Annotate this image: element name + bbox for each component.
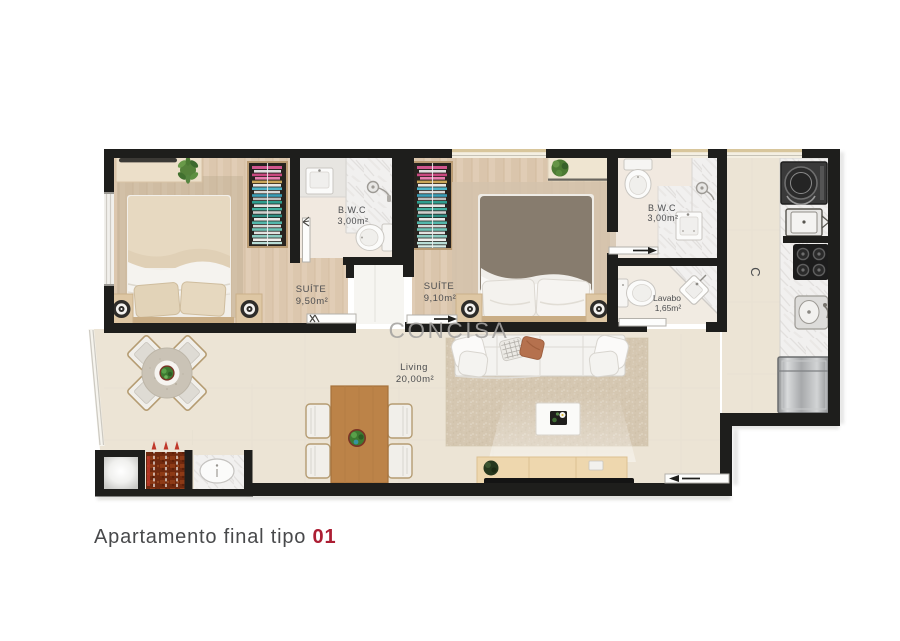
svg-text:3,00m²: 3,00m² [337,216,368,226]
svg-text:20,00m²: 20,00m² [396,374,434,385]
svg-text:C: C [748,267,763,276]
svg-text:CONCISA: CONCISA [389,318,510,343]
svg-text:Living: Living [400,362,428,373]
svg-text:SUÍTE: SUÍTE [424,281,454,292]
svg-text:3,00m²: 3,00m² [647,213,678,223]
svg-text:9,10m²: 9,10m² [424,293,457,304]
svg-text:9,50m²: 9,50m² [296,296,329,307]
svg-text:Lavabo: Lavabo [653,293,681,303]
svg-text:Apartamento final tipo 01: Apartamento final tipo 01 [94,526,336,548]
svg-text:1,65m²: 1,65m² [655,303,682,313]
svg-text:B.W.C: B.W.C [648,203,676,213]
svg-text:B.W.C: B.W.C [338,205,366,215]
svg-text:SUÍTE: SUÍTE [296,284,326,295]
